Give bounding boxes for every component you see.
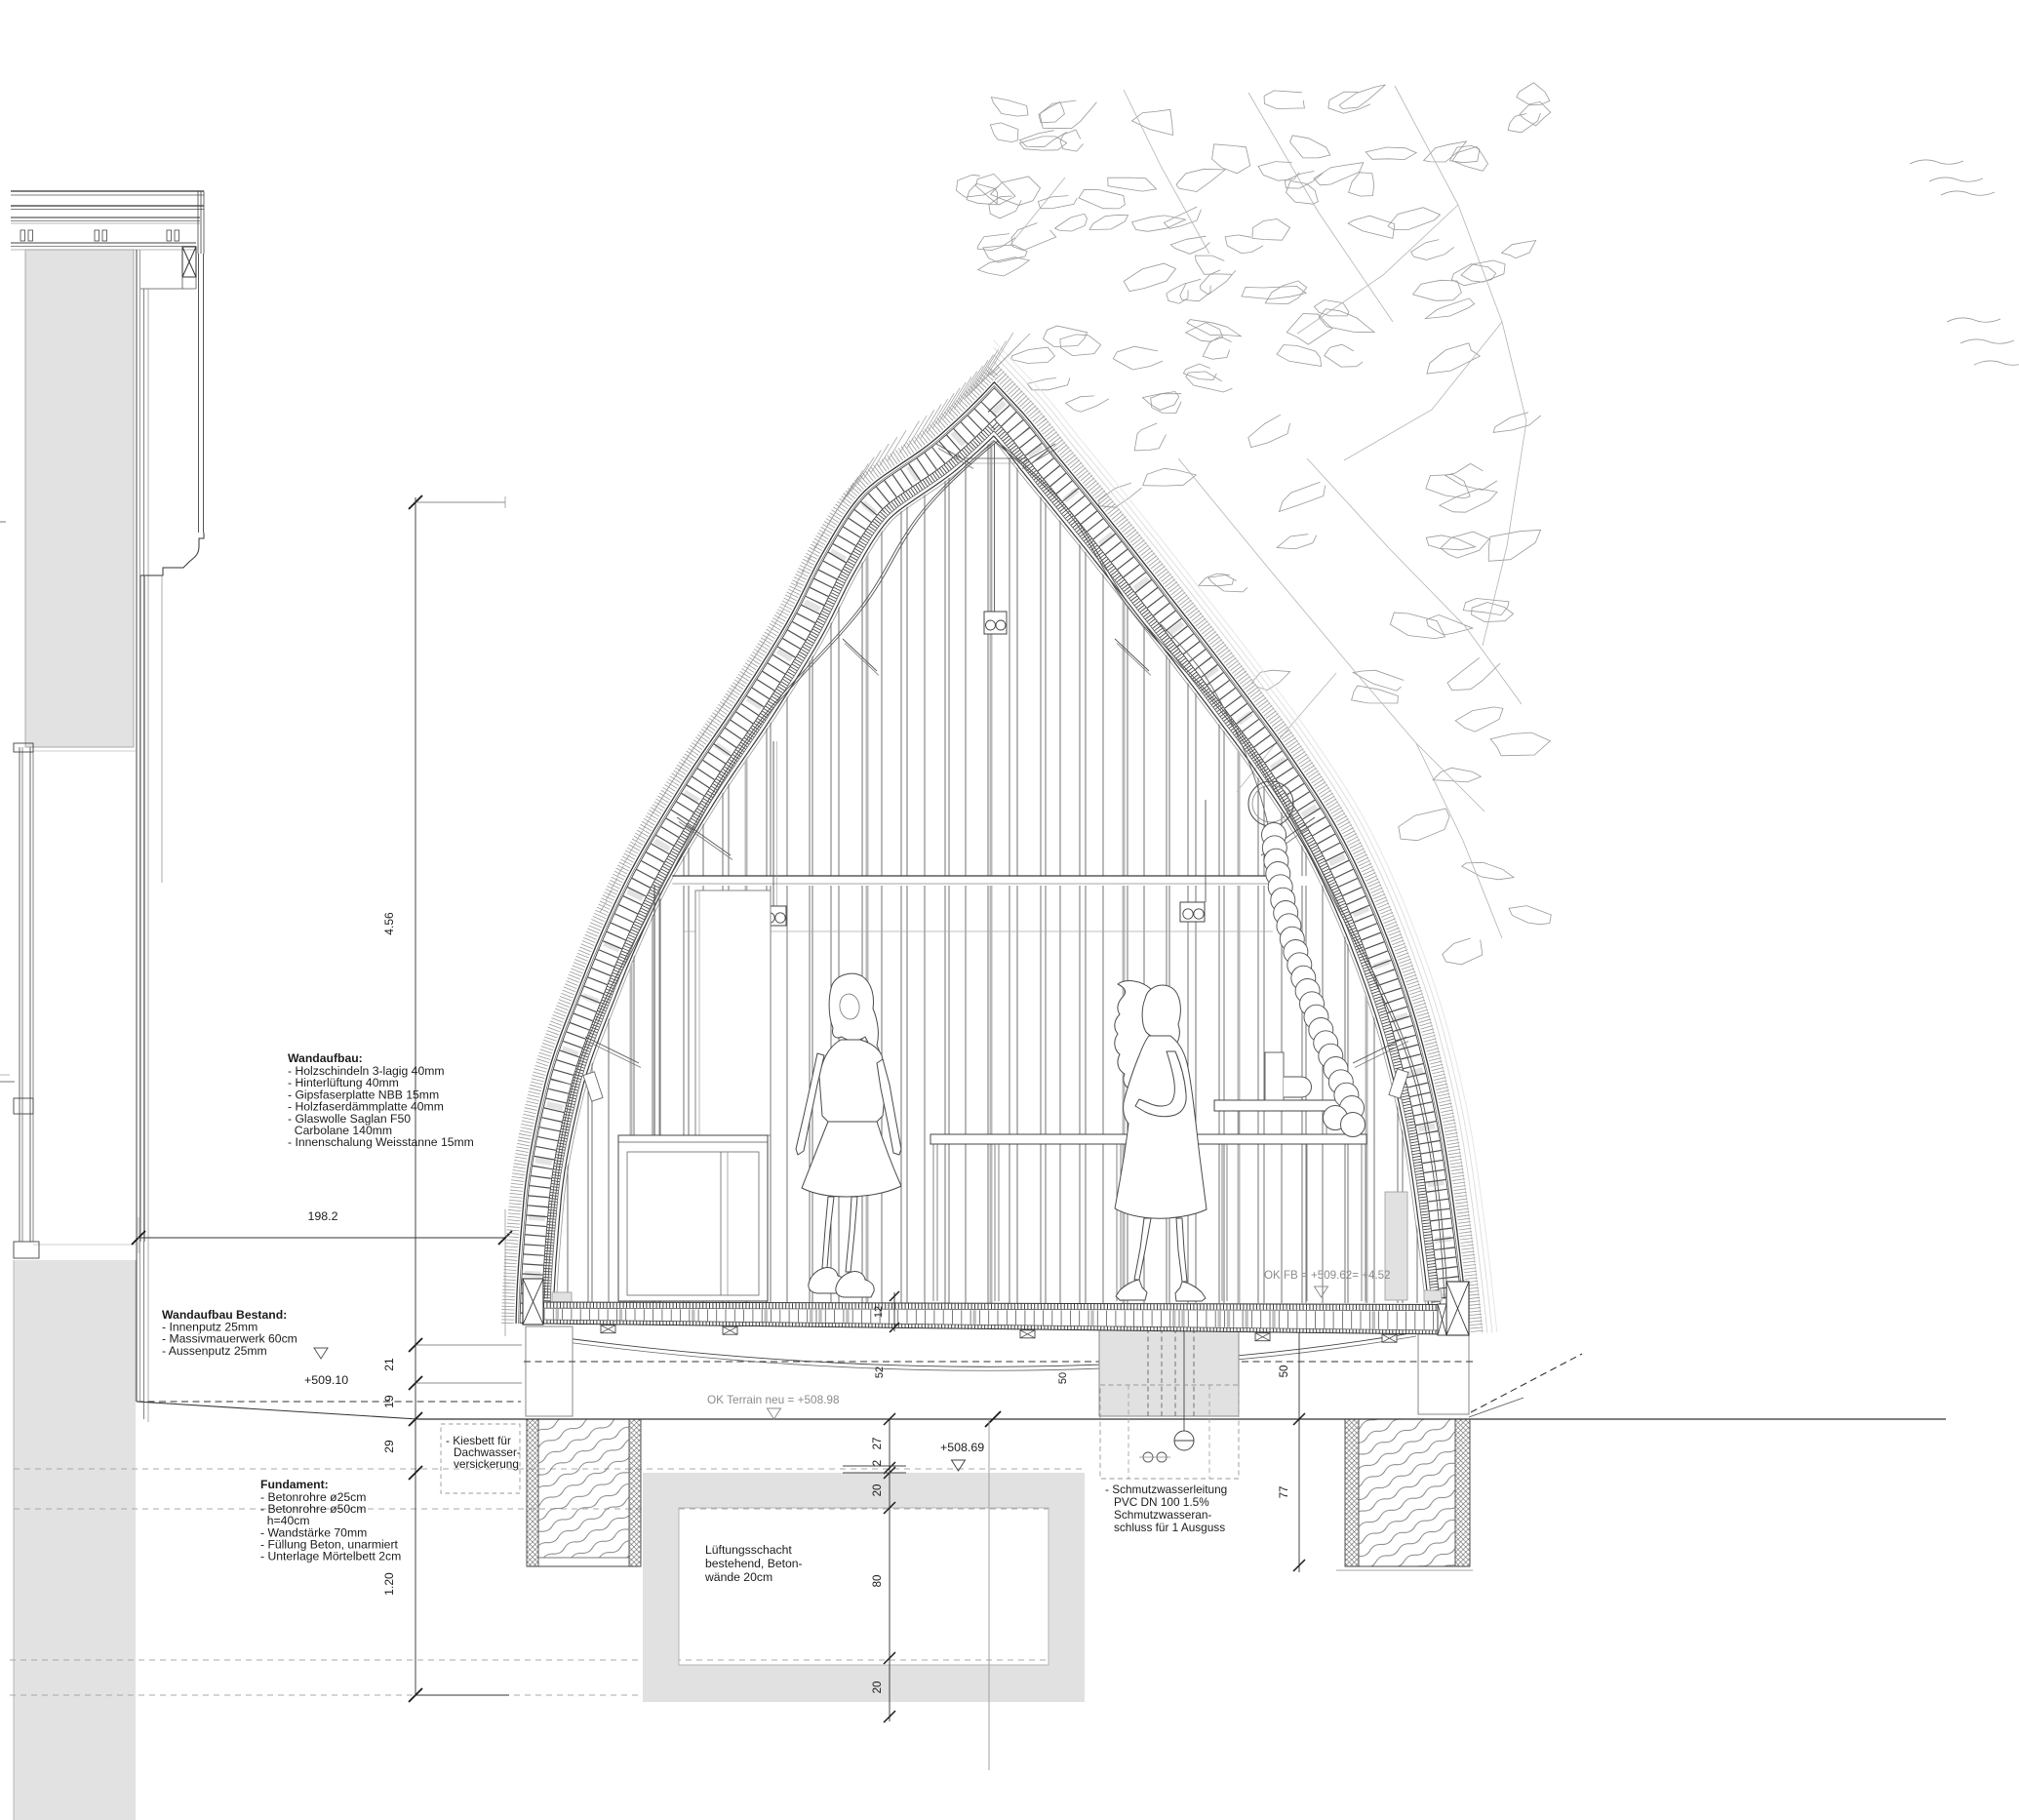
- svg-text:12: 12: [873, 1306, 885, 1318]
- svg-text:50: 50: [1057, 1372, 1069, 1384]
- svg-text:29: 29: [382, 1440, 396, 1453]
- svg-text:21: 21: [382, 1358, 396, 1371]
- svg-text:+509.10: +509.10: [304, 1373, 348, 1387]
- svg-text:20: 20: [872, 1484, 884, 1497]
- svg-text:versickerung: versickerung: [454, 1457, 519, 1471]
- svg-text:Schmutzwasseran-: Schmutzwasseran-: [1114, 1508, 1211, 1522]
- svg-text:80: 80: [872, 1575, 884, 1588]
- svg-text:bestehend, Beton-: bestehend, Beton-: [705, 1557, 803, 1570]
- svg-text:- Unterlage Mörtelbett 2cm: - Unterlage Mörtelbett 2cm: [260, 1550, 401, 1563]
- svg-text:198.2: 198.2: [307, 1209, 337, 1223]
- svg-text:Lüftungsschacht: Lüftungsschacht: [705, 1543, 792, 1557]
- svg-text:- Innenschalung Weisstanne 15m: - Innenschalung Weisstanne 15mm: [288, 1135, 474, 1149]
- svg-text:20: 20: [872, 1682, 884, 1694]
- svg-text:- Aussenputz 25mm: - Aussenputz 25mm: [162, 1344, 267, 1358]
- svg-text:52: 52: [874, 1366, 886, 1378]
- svg-text:Wandaufbau:: Wandaufbau:: [288, 1051, 363, 1065]
- svg-text:Fundament:: Fundament:: [260, 1478, 329, 1491]
- svg-text:27: 27: [872, 1438, 884, 1450]
- svg-text:schluss für 1 Ausguss: schluss für 1 Ausguss: [1114, 1521, 1225, 1534]
- svg-text:1.20: 1.20: [382, 1572, 396, 1596]
- svg-text:+508.69: +508.69: [940, 1441, 984, 1454]
- svg-text:2: 2: [872, 1460, 884, 1466]
- svg-text:wände 20cm: wände 20cm: [704, 1570, 772, 1584]
- svg-text:19: 19: [382, 1395, 396, 1408]
- svg-text:4.56: 4.56: [382, 912, 396, 935]
- svg-text:OK FB = +509.62= +4.52: OK FB = +509.62= +4.52: [1264, 1269, 1391, 1282]
- svg-text:50: 50: [1279, 1365, 1290, 1378]
- svg-text:OK Terrain neu = +508.98: OK Terrain neu = +508.98: [707, 1393, 840, 1406]
- svg-text:- Schmutzwasserleitung: - Schmutzwasserleitung: [1105, 1483, 1227, 1496]
- svg-text:PVC DN 100 1.5%: PVC DN 100 1.5%: [1114, 1495, 1209, 1509]
- svg-text:77: 77: [1279, 1486, 1290, 1499]
